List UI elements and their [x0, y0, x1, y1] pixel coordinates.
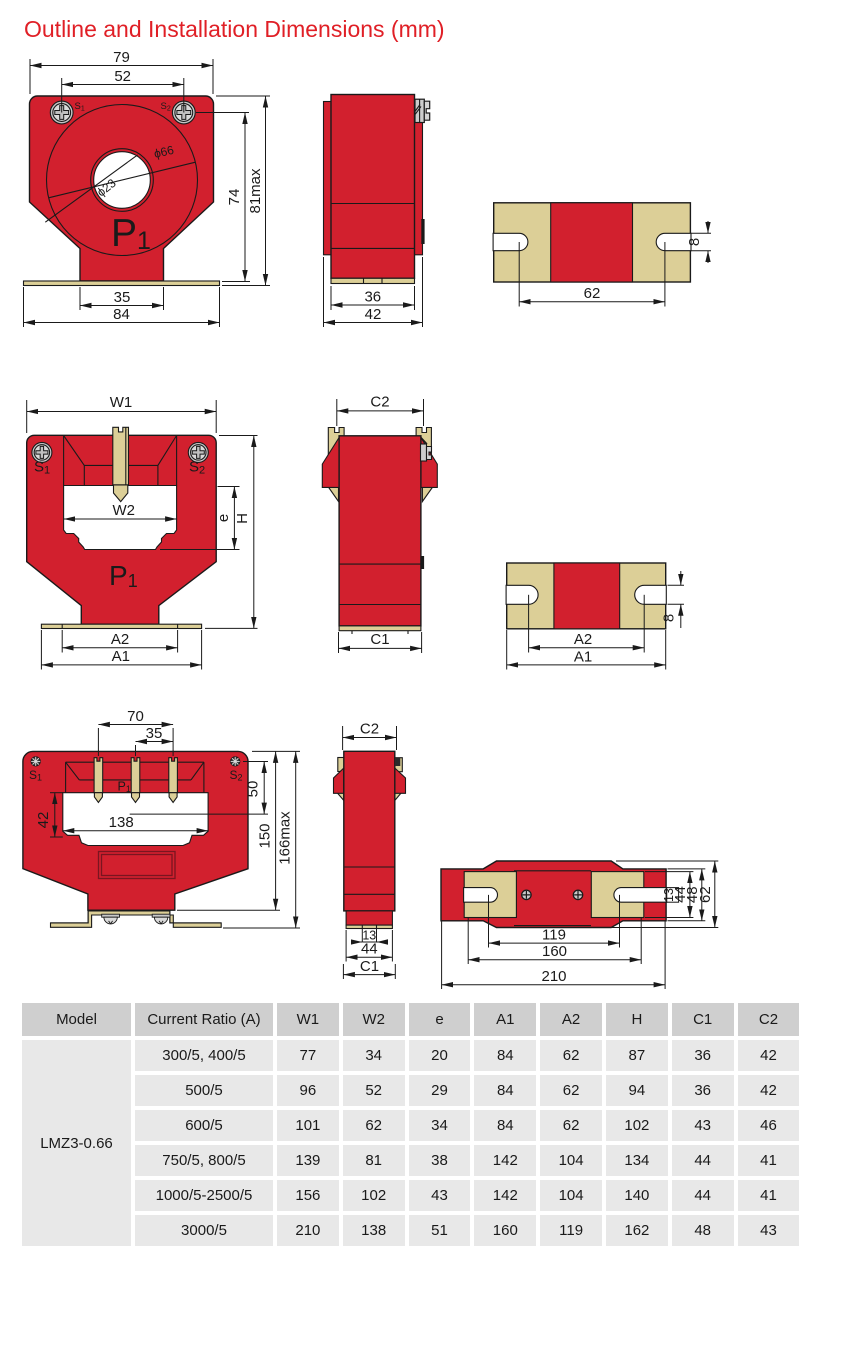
svg-text:210: 210: [541, 968, 566, 985]
svg-text:A2: A2: [574, 631, 592, 648]
svg-text:44: 44: [361, 941, 378, 958]
svg-text:A2: A2: [111, 631, 129, 648]
svg-text:8: 8: [686, 238, 703, 246]
svg-text:A1: A1: [574, 649, 592, 666]
svg-text:81max: 81max: [247, 168, 264, 214]
svg-text:160: 160: [542, 943, 567, 960]
svg-text:H: H: [234, 513, 251, 524]
svg-text:42: 42: [35, 812, 52, 829]
svg-text:138: 138: [109, 814, 134, 831]
svg-text:62: 62: [584, 285, 601, 302]
svg-text:A1: A1: [112, 648, 130, 665]
svg-text:42: 42: [365, 306, 382, 323]
svg-text:150: 150: [257, 823, 274, 848]
svg-text:C2: C2: [360, 721, 379, 738]
svg-text:119: 119: [542, 927, 566, 944]
svg-text:e: e: [215, 514, 232, 522]
svg-text:70: 70: [127, 708, 144, 725]
svg-text:74: 74: [226, 189, 243, 206]
svg-text:166max: 166max: [277, 811, 294, 865]
svg-text:62: 62: [697, 886, 714, 903]
svg-text:35: 35: [114, 289, 131, 306]
svg-text:C2: C2: [370, 394, 389, 411]
svg-text:84: 84: [113, 306, 130, 323]
svg-text:8: 8: [661, 614, 678, 622]
svg-text:50: 50: [245, 781, 262, 798]
svg-text:W2: W2: [112, 502, 135, 519]
svg-text:W1: W1: [110, 394, 133, 411]
svg-text:52: 52: [114, 68, 131, 85]
svg-text:79: 79: [113, 49, 130, 66]
svg-text:35: 35: [146, 725, 163, 742]
svg-text:36: 36: [364, 289, 381, 306]
svg-text:C1: C1: [360, 958, 379, 975]
svg-text:C1: C1: [370, 631, 389, 648]
